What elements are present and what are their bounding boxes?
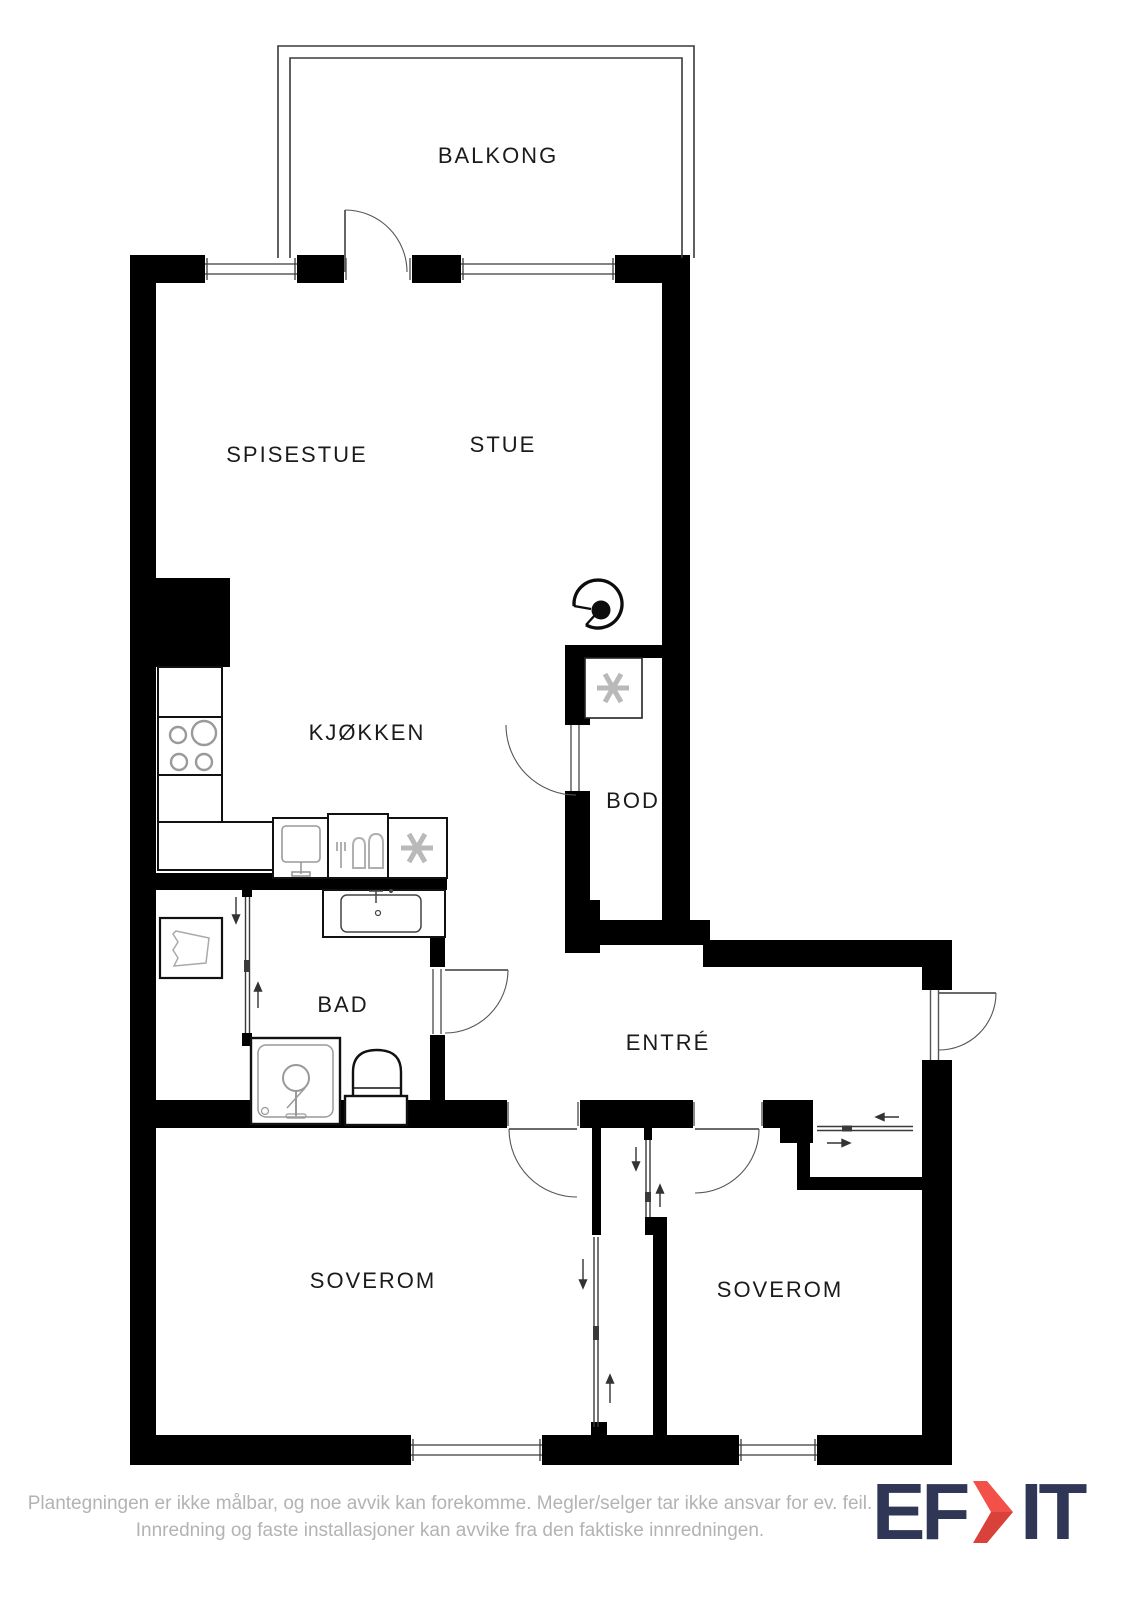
logo-text-prefix: EF bbox=[872, 1472, 966, 1552]
room-label-spisestue: SPISESTUE bbox=[226, 442, 367, 467]
counter-segment bbox=[158, 775, 222, 822]
room-label-entre: ENTRÉ bbox=[626, 1030, 711, 1055]
logo-text-suffix: IT bbox=[1020, 1472, 1083, 1552]
counter-segment bbox=[158, 667, 222, 717]
sliding-doors bbox=[244, 897, 913, 1427]
bathroom-fixtures bbox=[160, 889, 445, 1125]
disclaimer-line-1: Plantegningen er ikke målbar, og noe avv… bbox=[0, 1490, 900, 1517]
room-label-soverom-right: SOVEROM bbox=[717, 1277, 843, 1302]
kitchen-fixtures bbox=[158, 667, 447, 878]
arrow-down-icon bbox=[633, 1147, 640, 1170]
bathroom-door bbox=[433, 969, 508, 1034]
disclaimer-line-2: Innredning og faste installasjoner kan a… bbox=[0, 1517, 900, 1544]
efkt-logo: EF IT bbox=[872, 1462, 1083, 1562]
hall-closet-sliding-door bbox=[817, 1126, 913, 1132]
freezer-snowflake-icon bbox=[585, 658, 642, 718]
shower-icon bbox=[251, 1038, 340, 1124]
room-label-bad: BAD bbox=[317, 992, 368, 1017]
bedroom-right-door bbox=[694, 1102, 762, 1193]
arrow-up-icon bbox=[255, 983, 262, 1008]
bathroom-sliding-door bbox=[244, 897, 250, 1033]
arrow-up-icon bbox=[657, 1185, 664, 1207]
toilet-icon bbox=[345, 1050, 407, 1125]
counter-segment bbox=[158, 822, 273, 870]
room-label-bod: BOD bbox=[606, 788, 660, 813]
floorplan-page: BALKONG SPISESTUE STUE KJØKKEN BOD BAD E… bbox=[0, 0, 1131, 1600]
bod-door bbox=[506, 725, 579, 795]
balcony-door bbox=[345, 210, 410, 280]
disclaimer: Plantegningen er ikke målbar, og noe avv… bbox=[0, 1490, 900, 1544]
arrow-down-icon bbox=[580, 1259, 587, 1288]
arrow-up-icon bbox=[607, 1375, 614, 1403]
bathroom-vanity-icon bbox=[323, 889, 445, 937]
arrow-left-icon bbox=[876, 1114, 899, 1121]
arrow-right-icon bbox=[827, 1140, 850, 1147]
window-bedroom-left bbox=[411, 1439, 542, 1461]
window-bedroom-right bbox=[739, 1439, 817, 1461]
laundry-basket-icon bbox=[160, 918, 222, 978]
floorplan-canvas: BALKONG SPISESTUE STUE KJØKKEN BOD BAD E… bbox=[0, 0, 1131, 1600]
room-label-soverom-left: SOVEROM bbox=[310, 1268, 436, 1293]
bedroom-left-door bbox=[508, 1102, 578, 1197]
wardrobe-sliding-door-long bbox=[593, 1237, 599, 1427]
room-label-kjokken: KJØKKEN bbox=[309, 720, 426, 745]
fireplace-icon bbox=[574, 580, 622, 628]
window-living-left bbox=[205, 258, 297, 280]
room-label-balkong: BALKONG bbox=[438, 143, 558, 168]
logo-chevron-icon bbox=[968, 1481, 1018, 1543]
window-living-right bbox=[461, 258, 615, 280]
room-label-stue: STUE bbox=[470, 432, 537, 457]
entry-door bbox=[931, 990, 997, 1060]
closet-sliding-door-small bbox=[645, 1140, 651, 1217]
arrow-down-icon bbox=[233, 897, 240, 923]
